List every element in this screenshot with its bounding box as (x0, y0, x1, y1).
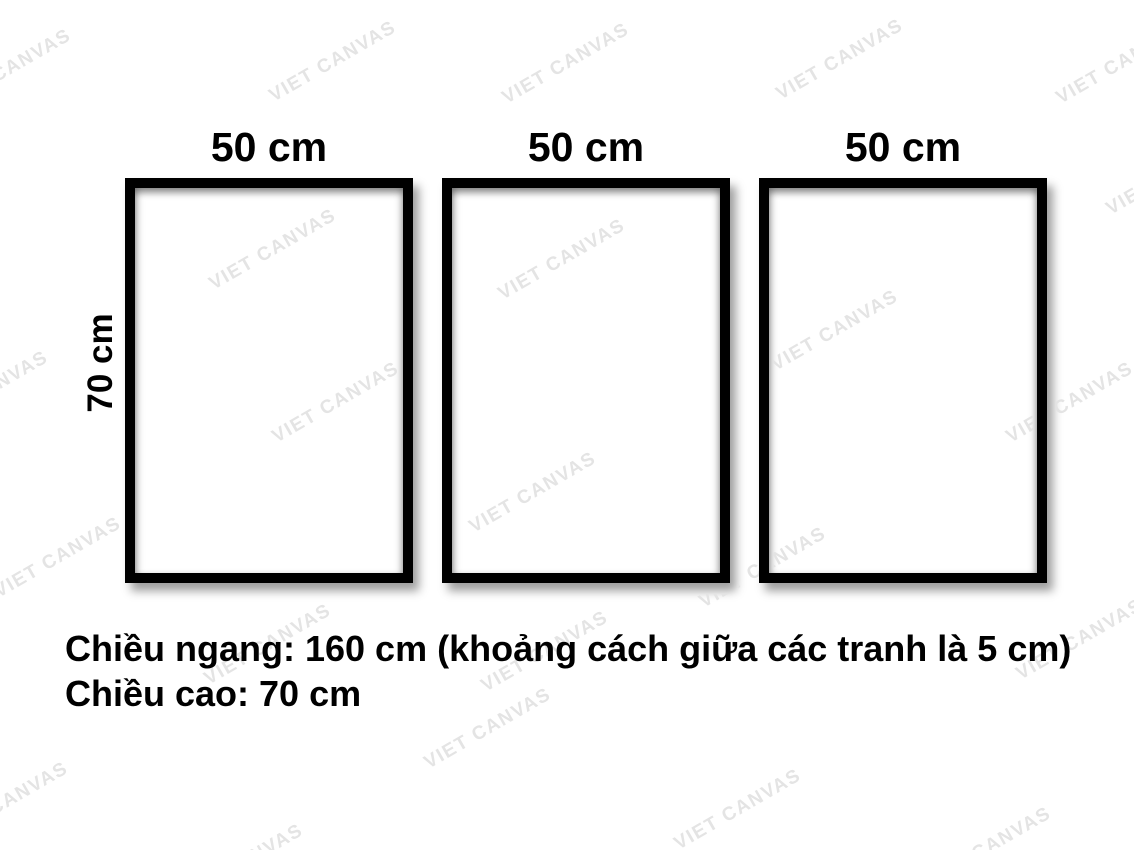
frame-3 (759, 178, 1047, 583)
watermark-text: VIET CANVAS (0, 758, 72, 848)
caption-line-horizontal: Chiều ngang: 160 cm (khoảng cách giữa cá… (65, 626, 1071, 671)
watermark-text: VIET CANVAS (0, 25, 75, 115)
watermark-text: VIET CANVAS (0, 513, 125, 603)
watermark-text: VIET CANVAS (266, 17, 401, 107)
watermark-text: VIET CANVAS (499, 19, 634, 109)
watermark-text: VIET CANVAS (671, 765, 806, 850)
watermark-text: VIET CANVAS (1103, 130, 1134, 220)
watermark-text: VIET CANVAS (773, 15, 908, 105)
frame-1 (125, 178, 413, 583)
size-diagram: 50 cm 50 cm 50 cm 70 cm Chiều ngang: 160… (0, 0, 1134, 850)
frame-3-width-label: 50 cm (759, 122, 1047, 172)
frame-2 (442, 178, 730, 583)
watermark-text: VIET CANVAS (173, 820, 308, 850)
watermark-text: VIET CANVAS (0, 347, 52, 437)
dimensions-caption: Chiều ngang: 160 cm (khoảng cách giữa cá… (65, 626, 1071, 716)
frame-height-label: 70 cm (79, 293, 123, 433)
frame-2-width-label: 50 cm (442, 122, 730, 172)
caption-line-vertical: Chiều cao: 70 cm (65, 671, 1071, 716)
frame-1-width-label: 50 cm (125, 122, 413, 172)
watermark-text: VIET CANVAS (1053, 19, 1134, 109)
watermark-text: VIET CANVAS (921, 803, 1056, 850)
